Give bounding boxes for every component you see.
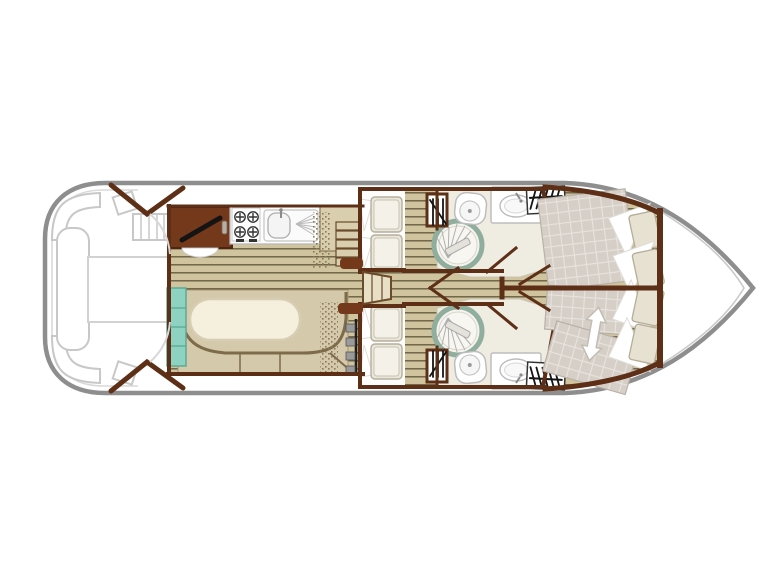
boat-floor-plan: [0, 0, 768, 576]
sink-bowl: [268, 213, 290, 238]
deck-table: [88, 257, 170, 322]
counter-dot-texture-aft: [320, 302, 338, 372]
galley-capsule: [222, 221, 227, 234]
door-leaf-starboard: [338, 303, 363, 314]
saloon-dinette: [178, 290, 352, 373]
galley-sink: [264, 208, 318, 241]
corridor-steps: [363, 272, 391, 304]
mid-cabin-port: [360, 189, 405, 272]
saloon-table: [190, 299, 300, 340]
counter-dot-texture: [313, 212, 331, 268]
mid-cabin-starboard: [360, 304, 405, 387]
door-leaf-port: [340, 258, 363, 269]
stove-knob: [249, 239, 257, 242]
stove-knob: [236, 239, 244, 242]
side-bench: [57, 228, 89, 350]
